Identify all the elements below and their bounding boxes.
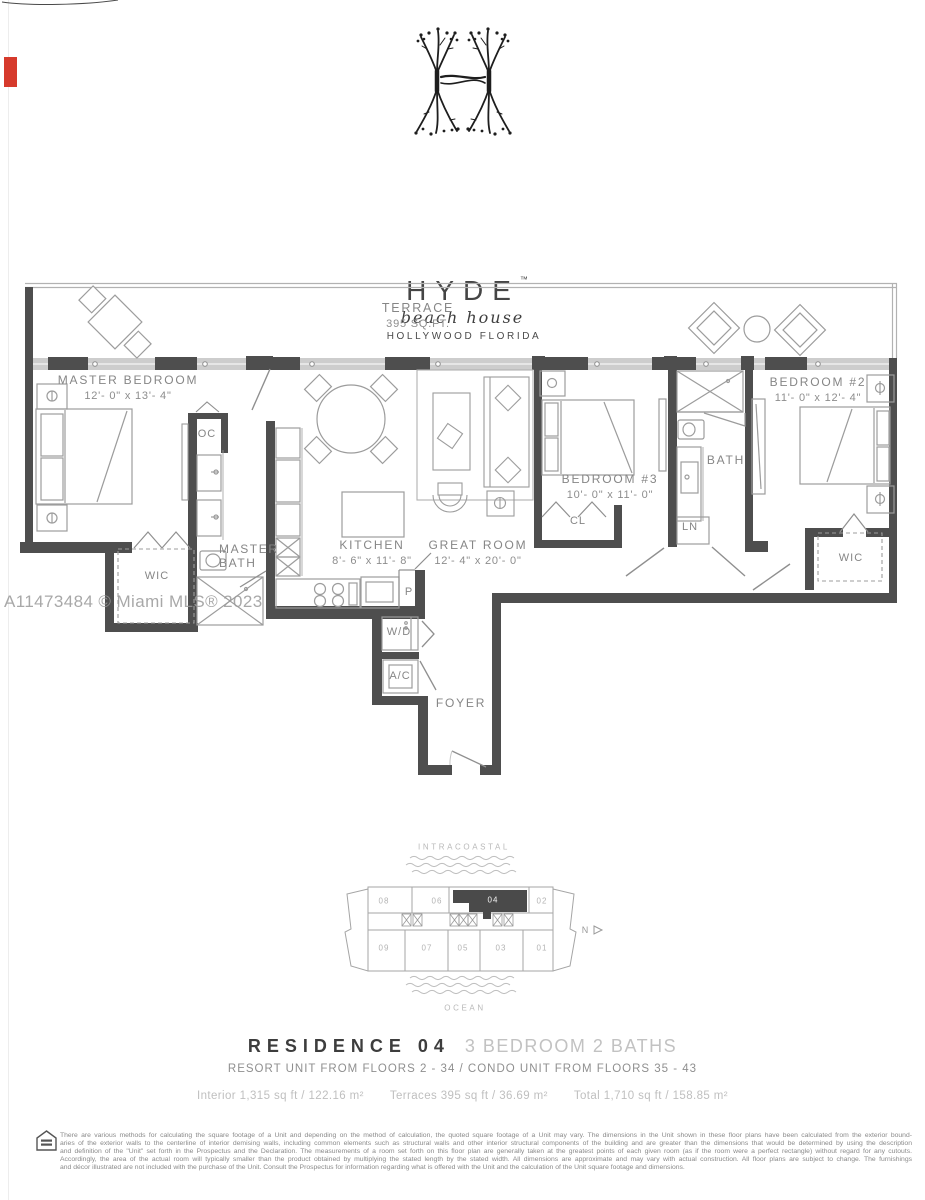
great-room-label: GREAT ROOM	[429, 538, 528, 552]
keyplan-unit-06: 06	[432, 897, 443, 906]
terrace-table-left-icon	[73, 280, 158, 365]
bedroom2-wic-label: WIC	[839, 552, 863, 564]
ac-label: A/C	[389, 670, 410, 682]
floorplan-page: HYDE™ beach house HOLLYWOOD FLORIDA	[0, 0, 925, 1200]
cl-closet-label: CL	[570, 515, 586, 527]
residence-title: RESIDENCE 04	[248, 1036, 450, 1057]
interior-area: Interior 1,315 sq ft / 122.16 m²	[197, 1090, 364, 1102]
north-label: N	[582, 925, 589, 935]
oc-closet-label: OC	[198, 428, 217, 440]
bedroom2-wic-door	[840, 514, 868, 532]
great-room-dims: 12'- 4" x 20'- 0"	[434, 555, 521, 567]
residence-title-row: RESIDENCE 04 3 BEDROOM 2 BATHS	[0, 1036, 925, 1057]
master-wic-doors	[134, 532, 190, 548]
kitchen-label: KITCHEN	[339, 538, 404, 552]
great-room-furniture	[417, 370, 533, 516]
foyer-label: FOYER	[436, 696, 486, 710]
dining-table-icon	[305, 375, 398, 464]
bath-label: BATH	[707, 453, 745, 467]
disclaimer-line: There are various methods for calculatin…	[60, 1132, 912, 1140]
bedroom2-dims: 11'- 0" x 12'- 4"	[775, 392, 862, 404]
master-mirror-icon	[182, 424, 188, 500]
master-bedroom-label: MASTER BEDROOM	[58, 373, 199, 387]
keyplan-unit-08: 08	[379, 897, 390, 906]
keyplan-unit-04: 04	[488, 896, 499, 905]
washer-dryer-label: W/D	[387, 626, 411, 638]
bedroom2-label: BEDROOM #2	[770, 375, 867, 389]
keyplan-unit-07: 07	[422, 944, 433, 953]
keyplan-unit-02: 02	[537, 897, 548, 906]
disclaimer-line: and décor illustrated are not included w…	[60, 1164, 912, 1172]
keyplan-unit-03: 03	[496, 944, 507, 953]
equal-housing-icon	[36, 1130, 57, 1151]
disclaimer-line: Accordingly, the area of the actual room…	[60, 1156, 912, 1164]
pantry-label: P	[405, 586, 413, 598]
total-area: Total 1,710 sq ft / 158.85 m²	[574, 1090, 728, 1102]
hall-doors	[626, 547, 790, 590]
master-bath-label: MASTER BATH	[219, 543, 279, 570]
disclaimer-line: and definition of the "Unit" set forth i…	[60, 1148, 912, 1156]
residence-subtitle: 3 BEDROOM 2 BATHS	[465, 1036, 677, 1057]
disclaimer-line: aries of the exterior walls to the cente…	[60, 1140, 912, 1148]
keyplan-core	[402, 914, 513, 926]
master-entry-door	[252, 369, 270, 410]
master-bed-icon	[36, 384, 132, 531]
residence-floors: RESORT UNIT FROM FLOORS 2 - 34 / CONDO U…	[0, 1063, 925, 1075]
keyplan-unit-05: 05	[458, 944, 469, 953]
master-wic-label: WIC	[145, 570, 169, 582]
oc-closet-doors	[196, 402, 219, 412]
keyplan-unit-01: 01	[537, 944, 548, 953]
terrace-area-label: 395 SQ.FT.	[386, 318, 450, 330]
north-arrow-icon	[594, 926, 602, 934]
terrace-label: TERRACE	[382, 301, 454, 315]
keyplan-waves-top	[406, 856, 516, 873]
keyplan-waves-bottom	[406, 976, 516, 993]
slider-band	[33, 357, 889, 370]
foyer-doors	[420, 621, 486, 767]
mls-watermark: A11473484 © Miami MLS® 2023	[4, 592, 263, 612]
residence-areas-row: Interior 1,315 sq ft / 122.16 m² Terrace…	[0, 1090, 925, 1102]
terrace-area: Terraces 395 sq ft / 36.69 m²	[390, 1090, 548, 1102]
intracoastal-label: INTRACOASTAL	[418, 843, 510, 852]
terrace-lounge-right-icon	[689, 303, 826, 356]
kitchen-fixtures	[276, 428, 404, 608]
master-bedroom-dims: 12'- 0" x 13'- 4"	[84, 390, 171, 402]
disclaimer-block: There are various methods for calculatin…	[60, 1132, 912, 1172]
bedroom3-furniture	[540, 371, 666, 475]
ocean-label: OCEAN	[444, 1004, 485, 1013]
keyplan-unit04-highlight	[453, 890, 527, 919]
bedroom3-label: BEDROOM #3	[562, 472, 659, 486]
linen-closet-label: LN	[682, 521, 698, 533]
kitchen-dims: 8'- 6" x 11'- 8"	[332, 555, 412, 567]
keyplan-unit-09: 09	[379, 944, 390, 953]
bedroom3-dims: 10'- 0" x 11'- 0"	[567, 489, 654, 501]
terrace-railing	[25, 284, 897, 359]
